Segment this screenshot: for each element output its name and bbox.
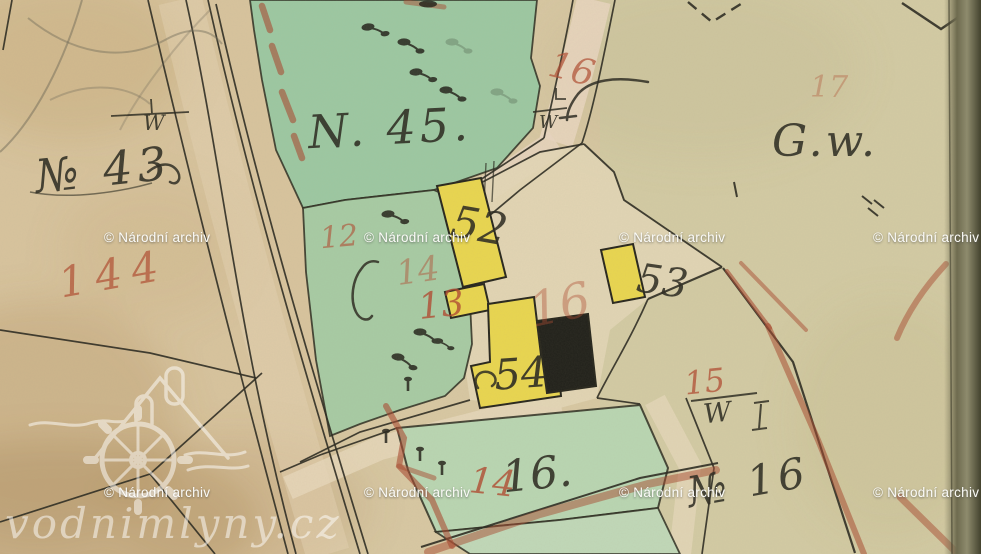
watermark-text: © Národní archiv bbox=[619, 230, 725, 245]
watermark-text: © Národní archiv bbox=[104, 230, 210, 245]
watermark-text: © Národní archiv bbox=[364, 230, 470, 245]
watermark-text: © Národní archiv bbox=[873, 230, 979, 245]
watermark-text: © Národní archiv bbox=[364, 485, 470, 500]
logo-text: vodnimlyny.cz bbox=[5, 499, 342, 548]
watermark-text: © Národní archiv bbox=[873, 485, 979, 500]
scan-edge bbox=[944, 0, 981, 554]
historical-cadastral-map: № 43 N. 45. G.w. 52 53 54 16. № 16 144 1… bbox=[0, 0, 981, 554]
map-viewport: № 43 N. 45. G.w. 52 53 54 16. № 16 144 1… bbox=[0, 0, 981, 554]
watermark-text: © Národní archiv bbox=[619, 485, 725, 500]
